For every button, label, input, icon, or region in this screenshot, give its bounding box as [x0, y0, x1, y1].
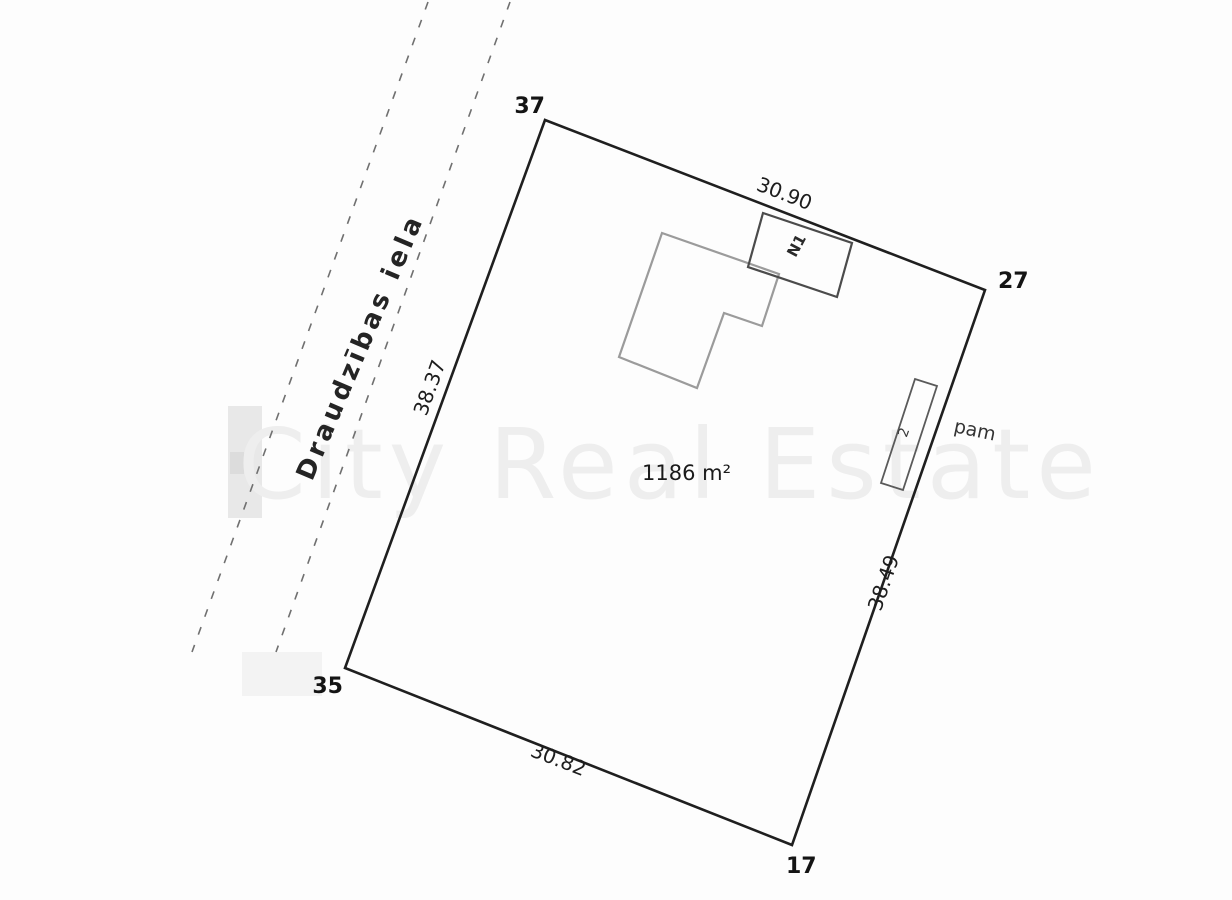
- street: Draudzības iela: [192, 2, 510, 652]
- watermark: City Real Estate: [228, 406, 1102, 696]
- cadastral-plan-page: City Real Estate Draudzības iela N1 2 pa…: [0, 0, 1232, 900]
- parcel-area-label: 1186 m²: [642, 461, 731, 485]
- building-footprint: [619, 233, 779, 388]
- side-length-top: 30.90: [753, 172, 815, 215]
- corner-label-east: 27: [998, 269, 1029, 294]
- side-length-bottom: 30.82: [527, 738, 589, 781]
- street-edge-dashed-line-right: [276, 2, 510, 652]
- corner-label-north: 37: [514, 94, 545, 119]
- annex-label: N1: [783, 231, 810, 260]
- side-length-right: 38.49: [863, 552, 904, 614]
- cadastral-plan-canvas: City Real Estate Draudzības iela N1 2 pa…: [0, 0, 1232, 900]
- corner-label-south: 17: [786, 854, 817, 879]
- corner-label-west: 35: [312, 674, 343, 699]
- watermark-fragment: [242, 652, 322, 696]
